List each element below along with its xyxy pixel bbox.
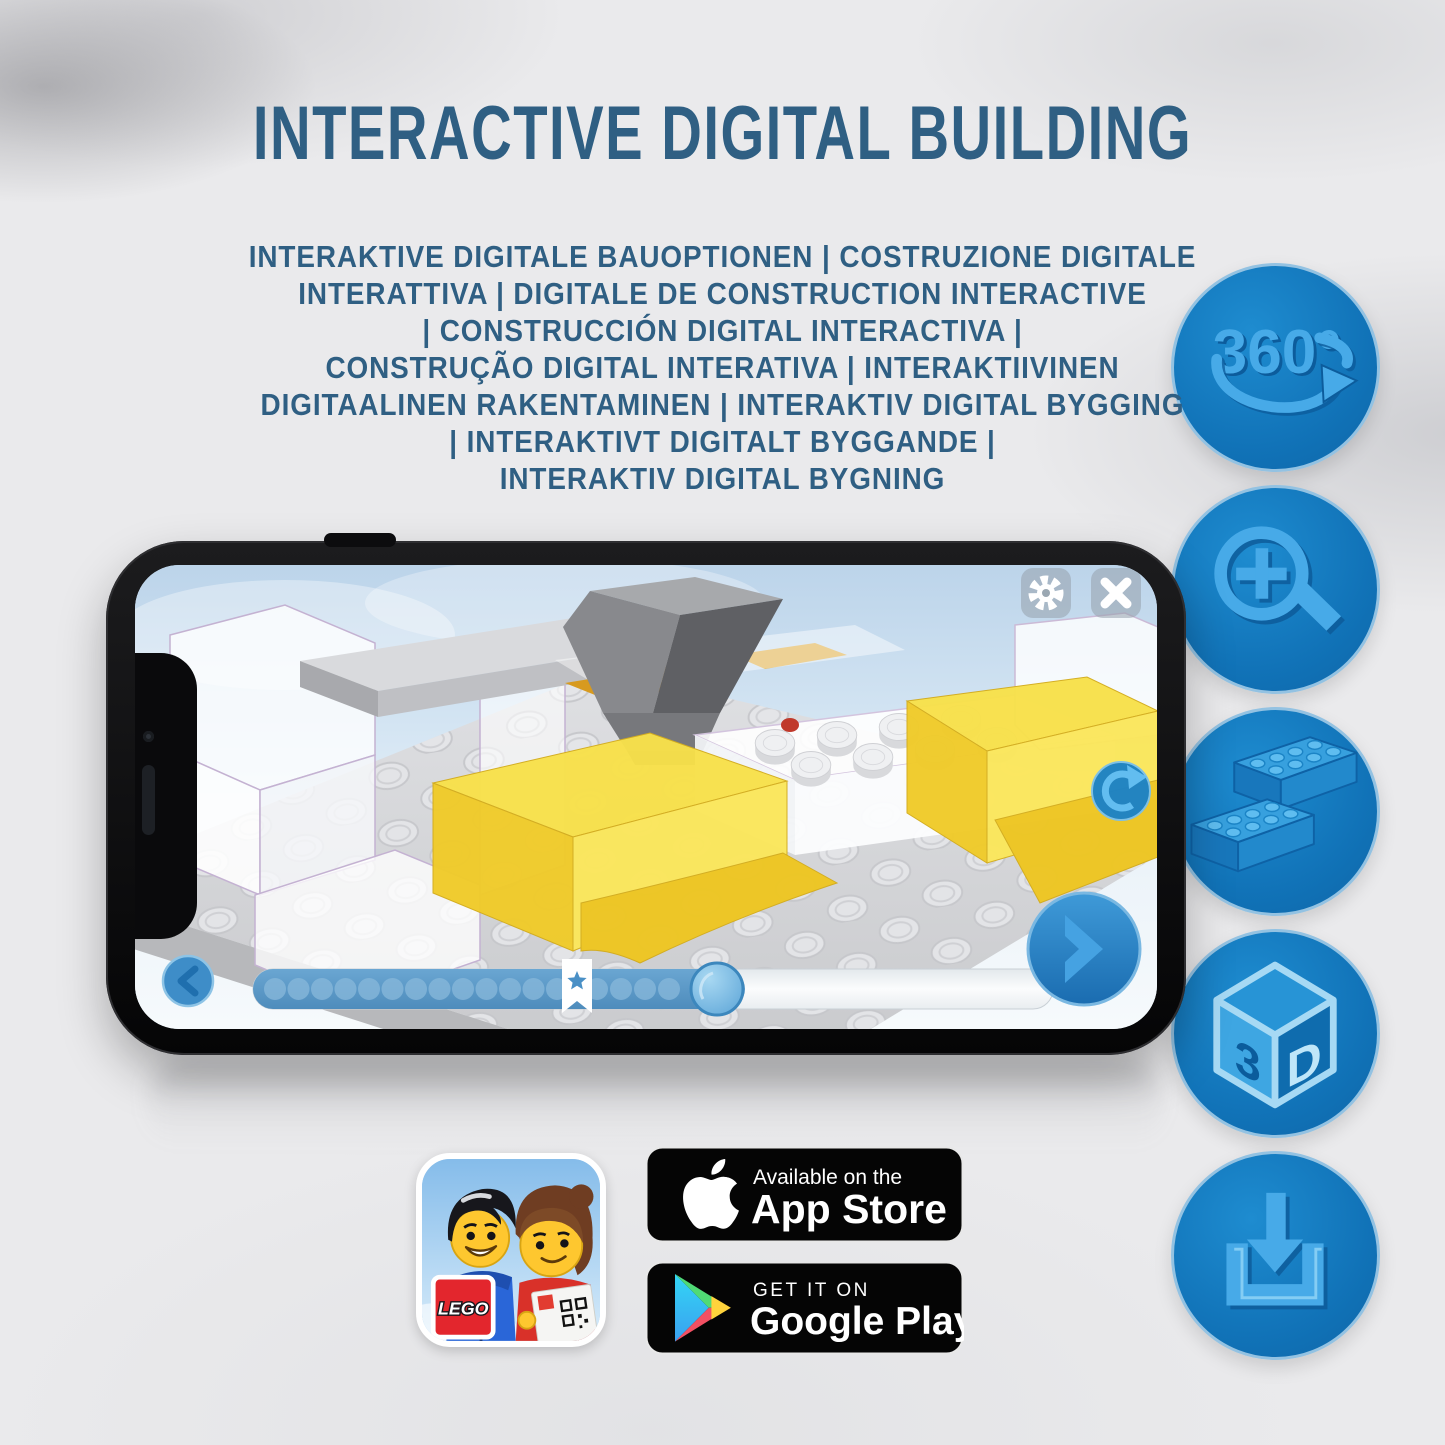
subtitle-line: CONSTRUÇÃO DIGITAL INTERATIVA | INTERAKT… <box>72 349 1373 386</box>
lego-brick-icon <box>1174 710 1377 913</box>
settings-button[interactable] <box>1021 568 1071 618</box>
download-icon <box>1174 1154 1377 1357</box>
next-step-button[interactable] <box>1028 893 1140 1005</box>
subtitle-line: | CONSTRUCCIÓN DIGITAL INTERACTIVA | <box>72 312 1373 349</box>
subtitle-line: INTERAKTIVE DIGITALE BAUOPTIONEN | COSTR… <box>72 238 1373 275</box>
previous-step-button[interactable] <box>163 956 213 1006</box>
earpiece-speaker <box>142 765 155 835</box>
lego-app-icon[interactable]: LEGO <box>416 1153 606 1347</box>
rotate-view-button[interactable] <box>1092 762 1150 820</box>
front-camera <box>143 731 154 742</box>
phone-screen <box>135 565 1157 1029</box>
google-play-badge[interactable]: GET IT ON Google Play <box>645 1261 964 1355</box>
lego-logo-text: LEGO <box>438 1299 489 1319</box>
app-store-badge[interactable]: Available on the App Store <box>645 1146 964 1243</box>
phone-reflection <box>150 1060 1160 1146</box>
multilingual-subtitle: INTERAKTIVE DIGITALE BAUOPTIONEN | COSTR… <box>72 238 1373 497</box>
google-play-tagline: GET IT ON <box>753 1280 870 1301</box>
qr-card <box>531 1284 598 1341</box>
3d-cube-icon: 3 D <box>1174 932 1377 1135</box>
phone-side-button <box>324 533 396 547</box>
feature-circle-download <box>1171 1151 1380 1360</box>
building-instructions-3d-view[interactable] <box>135 565 1157 1029</box>
subtitle-line: | INTERAKTIVT DIGITALT BYGGANDE | <box>72 423 1373 460</box>
feature-circle-zoom <box>1171 485 1380 694</box>
red-minifig-piece <box>781 718 799 732</box>
feature-circle-brick <box>1171 707 1380 916</box>
page-title: INTERACTIVE DIGITAL BUILDING <box>188 96 1257 172</box>
close-button[interactable] <box>1091 568 1141 618</box>
subtitle-line: INTERAKTIV DIGITAL BYGNING <box>72 460 1373 497</box>
subtitle-line: INTERATTIVA | DIGITALE DE CONSTRUCTION I… <box>72 275 1373 312</box>
google-play-name: Google Play <box>750 1300 964 1343</box>
marketing-page: INTERACTIVE DIGITAL BUILDING INTERAKTIVE… <box>0 0 1445 1445</box>
smartphone-mockup <box>106 541 1186 1055</box>
zoom-in-icon <box>1174 488 1377 691</box>
subtitle-line: DIGITAALINEN RAKENTAMINEN | INTERAKTIV D… <box>72 386 1373 423</box>
progress-slider-handle[interactable] <box>691 963 743 1015</box>
girl-minifig <box>516 1184 599 1341</box>
app-store-name: App Store <box>751 1186 947 1232</box>
phone-notch <box>135 653 197 939</box>
feature-circle-3d: 3 D <box>1171 929 1380 1138</box>
lego-logo: LEGO <box>433 1277 493 1337</box>
